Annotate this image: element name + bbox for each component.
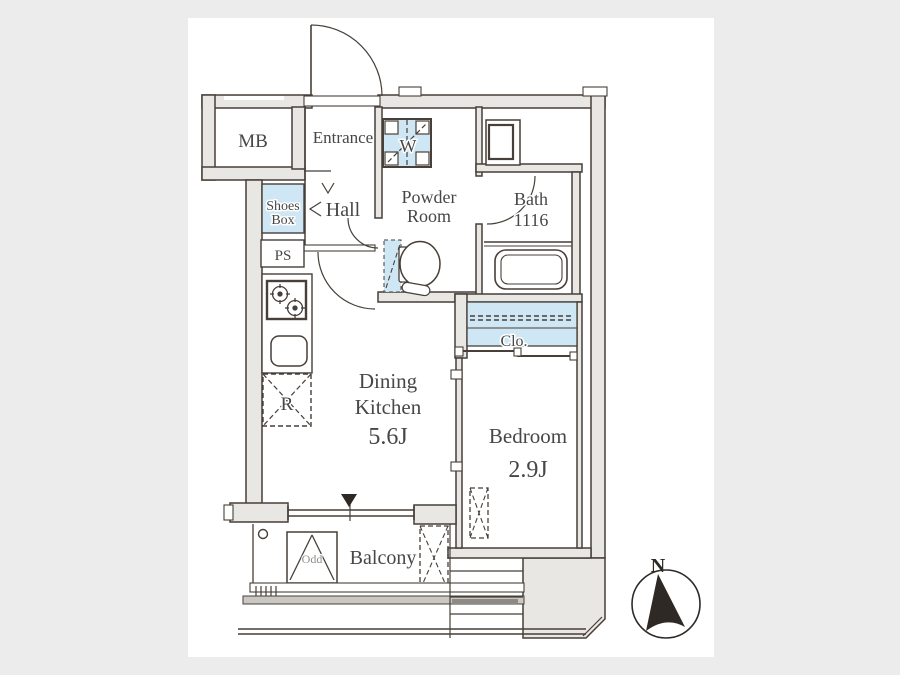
powder-room-label-2: Room [407,206,451,226]
refrigerator-label: R [281,394,294,415]
entrance-label: Entrance [313,128,373,147]
hall-label: Hall [326,199,361,221]
floor-plan-page: MB Entrance Shoes Box Hall PS W Powder R… [0,0,900,675]
bedroom-label: Bedroom [489,424,567,448]
bath-label: Bath [514,189,548,209]
ps-label: PS [275,248,292,264]
bedroom-size-label: 2.9J [508,457,547,483]
compass-north-label: N [651,555,666,577]
dining-kitchen-size-label: 5.6J [368,424,407,450]
drain-icon [259,530,268,539]
hatch-label: Odd [302,552,323,566]
balcony-label: Balcony [350,547,417,569]
washer-label: W [400,136,417,156]
kitchen-sink-icon [271,336,307,366]
kitchen-counter [262,274,312,373]
dining-kitchen-label-1: Dining [359,369,418,393]
compass-icon [632,570,700,638]
bath-size-label: 1116 [514,210,549,230]
mb-label: MB [238,131,268,152]
closet-label: Clo. [500,333,527,350]
shoes-box-label-1: Shoes [266,199,299,214]
gas-stove-icon [267,281,306,319]
shoes-box-label-2: Box [271,213,294,228]
powder-room-label-1: Powder [402,187,457,207]
floor-plan-drawing: MB Entrance Shoes Box Hall PS W Powder R… [0,0,900,675]
dining-kitchen-label-2: Kitchen [355,395,422,419]
